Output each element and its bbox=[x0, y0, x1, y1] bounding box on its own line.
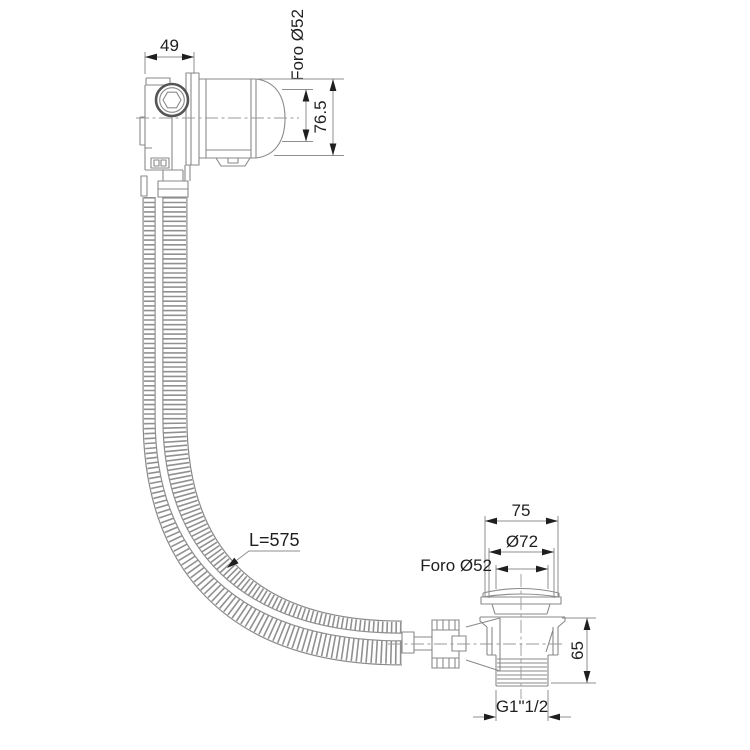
dimension-label-75: 75 bbox=[512, 501, 531, 520]
dimension-overflow-hole: Foro Ø52 bbox=[282, 9, 313, 141]
overflow-flange bbox=[186, 73, 199, 165]
dimension-overflow-height: 76.5 bbox=[258, 79, 344, 156]
dimension-drain-hole: Foro Ø52 bbox=[420, 556, 548, 589]
extension-lines bbox=[282, 90, 313, 142]
hose-end-clamp bbox=[402, 632, 414, 653]
dimension-label-49: 49 bbox=[160, 36, 179, 55]
drain-inlet-cone bbox=[466, 618, 500, 671]
hose-corrugation-ribs bbox=[165, 197, 402, 643]
hose-end-tube bbox=[414, 637, 432, 650]
hose-length-callout: L=575 bbox=[227, 530, 300, 568]
leader-line bbox=[233, 551, 300, 563]
drain-thread bbox=[496, 655, 548, 686]
drain-body bbox=[480, 617, 565, 655]
technical-drawing-page: 49 Foro Ø52 76.5 L=575 75 Ø72 F bbox=[0, 0, 750, 750]
dimension-overflow-width: 49 bbox=[145, 36, 194, 74]
overflow-cylinder bbox=[199, 79, 285, 158]
dimension-label-hose-length: L=575 bbox=[249, 530, 300, 550]
overflow-bottom-tab bbox=[216, 158, 250, 166]
dimension-drain-thread: G1"1/2 bbox=[473, 690, 571, 721]
drain-fitting bbox=[388, 574, 565, 699]
dimension-label-72: Ø72 bbox=[506, 532, 538, 551]
dimension-label-76-5: 76.5 bbox=[311, 100, 330, 133]
dimension-label-thread: G1"1/2 bbox=[496, 697, 548, 716]
overflow-fitting bbox=[136, 73, 299, 197]
flexible-hose bbox=[159, 197, 402, 643]
dimension-label-foro52-top: Foro Ø52 bbox=[288, 9, 307, 81]
nut-inner-clamp bbox=[452, 636, 466, 651]
hex-screw-boss bbox=[156, 84, 188, 116]
bath-drain-technical-drawing: 49 Foro Ø52 76.5 L=575 75 Ø72 F bbox=[0, 0, 750, 750]
dimension-label-foro52-bottom: Foro Ø52 bbox=[420, 556, 492, 575]
dimension-label-65: 65 bbox=[568, 641, 587, 660]
